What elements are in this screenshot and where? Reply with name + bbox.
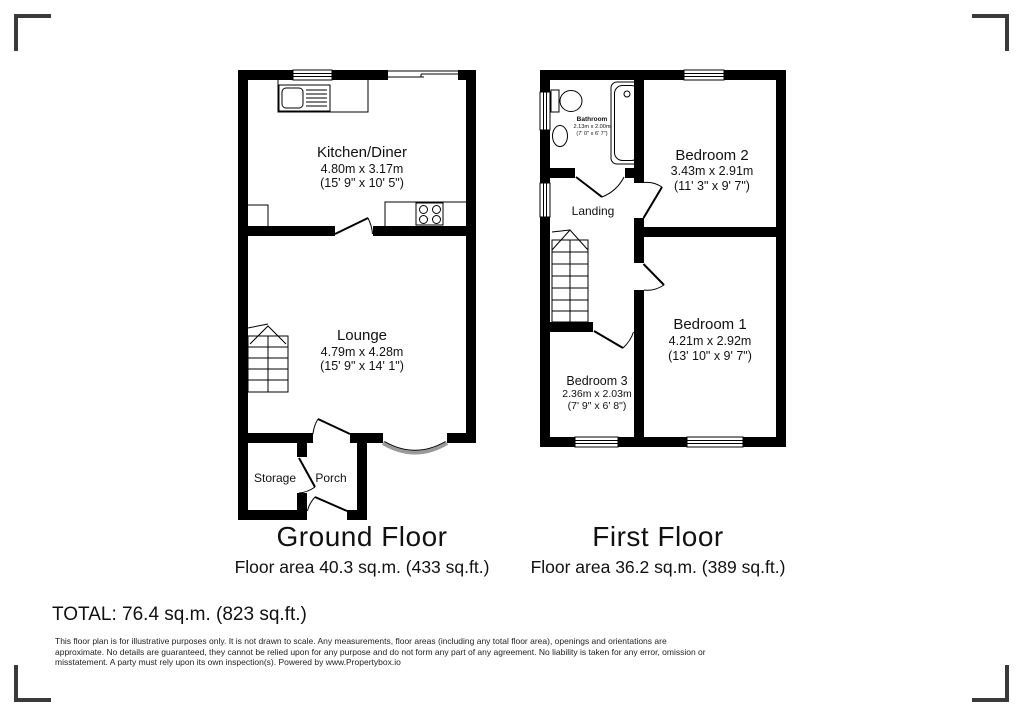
first-floor-area: Floor area 36.2 sq.m. (389 sq.ft.) bbox=[484, 557, 832, 578]
ground-walls bbox=[238, 70, 476, 520]
room-dim-lounge-imperial: (15' 9" x 14' 1") bbox=[320, 359, 404, 373]
room-label-lounge: Lounge bbox=[337, 327, 387, 344]
room-dim-bedroom2-imperial: (11' 3" x 9' 7") bbox=[674, 179, 750, 193]
patio-door bbox=[388, 70, 458, 80]
room-label-bedroom1: Bedroom 1 bbox=[673, 316, 746, 333]
corner-mark-top-right bbox=[972, 14, 1009, 51]
room-dim-kitchen-metric: 4.80m x 3.17m bbox=[321, 162, 404, 176]
basin-icon bbox=[553, 126, 568, 147]
room-dim-bedroom3-imperial: (7' 9" x 6' 8") bbox=[568, 400, 627, 412]
bay-window bbox=[383, 442, 447, 453]
toilet-icon bbox=[551, 90, 582, 112]
ground-floor-plan: Kitchen/Diner 4.80m x 3.17m (15' 9" x 10… bbox=[238, 68, 478, 523]
room-label-bathroom: Bathroom bbox=[577, 116, 608, 123]
room-dim-bathroom-metric: 2.13m x 2.00m bbox=[574, 124, 611, 130]
corner-mark-top-left bbox=[14, 14, 51, 51]
room-label-bedroom2: Bedroom 2 bbox=[675, 147, 748, 164]
first-floor-caption: First Floor Floor area 36.2 sq.m. (389 s… bbox=[484, 521, 832, 578]
kitchen-unit-outline bbox=[248, 205, 268, 226]
corner-mark-bottom-left bbox=[14, 665, 51, 702]
room-label-landing: Landing bbox=[572, 204, 615, 218]
room-label-storage: Storage bbox=[254, 471, 296, 485]
room-dim-bedroom1-metric: 4.21m x 2.92m bbox=[669, 334, 752, 348]
kitchen-window bbox=[293, 70, 332, 80]
room-label-kitchen: Kitchen/Diner bbox=[317, 144, 407, 161]
room-label-bedroom3: Bedroom 3 bbox=[566, 374, 627, 388]
room-label-porch: Porch bbox=[315, 471, 346, 485]
stairs-icon-first bbox=[552, 230, 588, 322]
hob-icon bbox=[416, 203, 443, 225]
room-dim-bedroom2-metric: 3.43m x 2.91m bbox=[671, 164, 754, 178]
room-dim-kitchen-imperial: (15' 9" x 10' 5") bbox=[320, 176, 404, 190]
corner-mark-bottom-right bbox=[972, 665, 1009, 702]
sink-icon bbox=[282, 88, 327, 108]
total-area-label: TOTAL: 76.4 sq.m. (823 sq.ft.) bbox=[52, 604, 307, 626]
first-floor-title: First Floor bbox=[484, 521, 832, 553]
room-dim-bedroom1-imperial: (13' 10" x 9' 7") bbox=[668, 349, 752, 363]
floorplan-page: Kitchen/Diner 4.80m x 3.17m (15' 9" x 10… bbox=[0, 0, 1024, 716]
kitchen-counter bbox=[278, 80, 368, 112]
disclaimer-text: This floor plan is for illustrative purp… bbox=[55, 636, 717, 668]
room-dim-bathroom-imperial: (7' 0" x 6' 7") bbox=[576, 131, 607, 137]
room-dim-bedroom3-metric: 2.36m x 2.03m bbox=[562, 388, 632, 400]
room-dim-lounge-metric: 4.79m x 4.28m bbox=[321, 345, 404, 359]
first-floor-plan: Bathroom 2.13m x 2.00m (7' 0" x 6' 7") B… bbox=[540, 68, 786, 450]
stairs-icon bbox=[248, 324, 288, 392]
